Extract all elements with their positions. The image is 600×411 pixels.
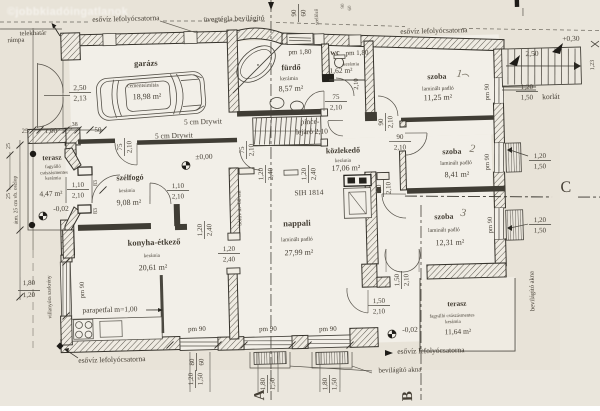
svg-text:8,57 m²: 8,57 m² xyxy=(278,84,303,94)
svg-text:1,20: 1,20 xyxy=(534,152,547,160)
svg-text:pince-: pince- xyxy=(300,117,319,127)
svg-text:-0,02: -0,02 xyxy=(402,325,418,334)
svg-text:1,20: 1,20 xyxy=(534,216,547,224)
svg-text:2,40: 2,40 xyxy=(205,223,213,236)
svg-text:pm 90: pm 90 xyxy=(188,325,206,333)
svg-text:60: 60 xyxy=(348,5,353,11)
svg-text:pm 90: pm 90 xyxy=(259,325,277,333)
svg-text:kerámia: kerámia xyxy=(119,189,136,194)
svg-text:kerámia: kerámia xyxy=(280,76,298,82)
svg-text:18,98 m²: 18,98 m² xyxy=(133,92,162,102)
svg-text:fürdő: fürdő xyxy=(281,63,300,72)
svg-text:szoba: szoba xyxy=(442,147,461,156)
svg-text:90: 90 xyxy=(341,3,346,9)
svg-text:1,50: 1,50 xyxy=(534,226,547,234)
svg-text:12,31 m²: 12,31 m² xyxy=(435,238,464,248)
svg-text:B: B xyxy=(400,391,416,401)
svg-text:pm 1,80: pm 1,80 xyxy=(288,48,312,57)
svg-text:90: 90 xyxy=(375,184,383,192)
svg-text:esővíz lefolyócsatorna: esővíz lefolyócsatorna xyxy=(400,25,468,36)
svg-text:2,10: 2,10 xyxy=(384,181,392,194)
svg-text:1,50: 1,50 xyxy=(196,372,204,385)
svg-text:fagyálló: fagyálló xyxy=(45,165,61,170)
svg-text:szoba: szoba xyxy=(427,72,446,81)
svg-text:5 cm Drywit: 5 cm Drywit xyxy=(184,116,223,126)
svg-text:rámpa: rámpa xyxy=(7,37,24,44)
svg-text:1,20: 1,20 xyxy=(257,167,265,180)
svg-text:1,50: 1,50 xyxy=(373,297,386,305)
svg-text:75: 75 xyxy=(116,143,124,151)
svg-text:1,50: 1,50 xyxy=(521,93,534,101)
svg-text:1,50: 1,50 xyxy=(534,162,547,170)
svg-text:11,25 m²: 11,25 m² xyxy=(424,93,453,103)
svg-text:9,08 m²: 9,08 m² xyxy=(117,198,142,208)
svg-text:17,06 m²: 17,06 m² xyxy=(331,163,360,173)
svg-text:közlekedő: közlekedő xyxy=(326,146,360,156)
svg-text:1,80: 1,80 xyxy=(259,377,267,390)
svg-text:laminált padló: laminált padló xyxy=(281,237,313,244)
svg-text:1,62 m²: 1,62 m² xyxy=(329,66,353,76)
svg-text:90: 90 xyxy=(396,133,404,141)
svg-text:SIH 1814: SIH 1814 xyxy=(294,188,323,198)
svg-text:90: 90 xyxy=(377,118,385,126)
svg-text:kerámia: kerámia xyxy=(144,254,161,259)
svg-text:1,10: 1,10 xyxy=(172,182,185,190)
svg-text:2,10: 2,10 xyxy=(125,140,133,153)
svg-text:terasz: terasz xyxy=(42,153,62,163)
svg-text:2,10: 2,10 xyxy=(394,143,407,151)
svg-text:75: 75 xyxy=(238,146,246,154)
svg-text:cementsimítás: cementsimítás xyxy=(127,83,159,90)
svg-text:2,10: 2,10 xyxy=(386,115,394,128)
svg-text:2,10: 2,10 xyxy=(353,78,360,90)
svg-text:25: 25 xyxy=(22,128,29,135)
svg-text:©jobbkiadóingatlanok: ©jobbkiadóingatlanok xyxy=(7,6,129,18)
svg-text:1,20: 1,20 xyxy=(300,167,308,180)
svg-text:1,20: 1,20 xyxy=(196,223,204,236)
svg-text:1,20: 1,20 xyxy=(23,291,36,299)
svg-text:boltív m=60 cm: boltív m=60 cm xyxy=(237,190,244,226)
svg-text:-0,02: -0,02 xyxy=(53,204,69,213)
svg-text:8,41 m²: 8,41 m² xyxy=(444,170,469,180)
svg-text:laminált padló: laminált padló xyxy=(428,227,460,234)
svg-text:nappali: nappali xyxy=(283,218,311,229)
svg-text:1,20: 1,20 xyxy=(223,245,236,253)
svg-text:konyha-étkező: konyha-étkező xyxy=(127,236,180,247)
svg-text:bevilágító akna: bevilágító akna xyxy=(528,271,536,311)
svg-text:pm 90: pm 90 xyxy=(487,217,494,234)
svg-text:pm 90: pm 90 xyxy=(79,282,86,299)
svg-text:szélfogó: szélfogó xyxy=(116,173,143,183)
svg-text:2,10: 2,10 xyxy=(330,103,343,111)
svg-text:kerámia: kerámia xyxy=(445,320,461,325)
svg-text:1,20: 1,20 xyxy=(187,372,195,385)
svg-text:75: 75 xyxy=(332,93,340,101)
svg-text:esővíz lefolyócsatorna: esővíz lefolyócsatorna xyxy=(397,345,465,356)
svg-text:kerámia: kerámia xyxy=(45,176,61,181)
svg-text:5 cm Drywit: 5 cm Drywit xyxy=(155,130,194,140)
svg-text:pm 1,80: pm 1,80 xyxy=(345,49,369,58)
svg-text:szellőző: szellőző xyxy=(315,8,320,25)
svg-text:2,40: 2,40 xyxy=(309,167,317,180)
svg-text:2,50: 2,50 xyxy=(525,49,539,58)
svg-text:2,10: 2,10 xyxy=(72,191,85,199)
svg-text:A: A xyxy=(252,389,268,400)
svg-text:pm 90: pm 90 xyxy=(484,154,491,171)
svg-text:83: 83 xyxy=(93,208,99,214)
svg-text:83: 83 xyxy=(93,180,99,186)
svg-text:20,61 m²: 20,61 m² xyxy=(139,263,168,273)
svg-text:,38: ,38 xyxy=(70,122,78,128)
svg-text:üvegtégla bevilágító: üvegtégla bevilágító xyxy=(203,13,264,24)
svg-text:pm 90: pm 90 xyxy=(484,84,491,101)
svg-text:1,23: 1,23 xyxy=(590,60,596,71)
svg-text:átm. 25 cm vb. oszlop: átm. 25 cm vb. oszlop xyxy=(12,175,19,224)
svg-text:garázs: garázs xyxy=(134,58,159,69)
svg-text:1,00: 1,00 xyxy=(45,127,58,135)
svg-text:2,50: 2,50 xyxy=(73,83,87,92)
svg-text:90: 90 xyxy=(290,9,298,17)
svg-text:80: 80 xyxy=(188,358,196,366)
svg-text:25: 25 xyxy=(6,193,12,199)
svg-text:11,64 m²: 11,64 m² xyxy=(445,327,473,337)
svg-text:villanyóra szekrény: villanyóra szekrény xyxy=(46,275,53,319)
svg-text:2,40: 2,40 xyxy=(223,255,236,263)
svg-text:laminált padló: laminált padló xyxy=(422,86,454,93)
svg-text:esővíz lefolyócsatorna: esővíz lefolyócsatorna xyxy=(78,354,146,365)
svg-text:pm 90: pm 90 xyxy=(319,325,337,333)
svg-text:2,13: 2,13 xyxy=(73,93,87,102)
svg-text:60: 60 xyxy=(299,9,307,17)
svg-text:2,10: 2,10 xyxy=(373,307,386,315)
svg-text:szoba: szoba xyxy=(434,212,453,221)
svg-text:1,10: 1,10 xyxy=(72,181,85,189)
svg-text:bevilágító akna: bevilágító akna xyxy=(378,365,422,374)
svg-text:laminált padló: laminált padló xyxy=(440,160,472,167)
svg-text:+0,30: +0,30 xyxy=(562,34,580,43)
svg-text:wc: wc xyxy=(330,48,340,57)
svg-text:1,50: 1,50 xyxy=(393,273,401,286)
svg-text:4,47 m²: 4,47 m² xyxy=(39,189,63,199)
svg-text:1,50: 1,50 xyxy=(268,377,276,390)
svg-text:60: 60 xyxy=(197,358,205,366)
svg-text:korlát: korlát xyxy=(542,92,561,101)
svg-text:2,10: 2,10 xyxy=(172,192,185,200)
svg-text:1,80: 1,80 xyxy=(23,279,36,287)
svg-text:C: C xyxy=(560,179,571,196)
svg-text:25: 25 xyxy=(6,143,12,149)
svg-text:lejáró 2,10: lejáró 2,10 xyxy=(296,127,329,137)
svg-text:27,99 m²: 27,99 m² xyxy=(284,248,313,258)
svg-text:2,40: 2,40 xyxy=(266,167,274,180)
svg-text:1,80: 1,80 xyxy=(321,377,329,390)
svg-text:parapetfal m=1,00: parapetfal m=1,00 xyxy=(82,304,138,314)
svg-text:±0,00: ±0,00 xyxy=(195,152,213,161)
svg-text:1,20: 1,20 xyxy=(521,83,534,91)
svg-text:2,10: 2,10 xyxy=(402,273,410,286)
svg-text:1,50: 1,50 xyxy=(330,377,338,390)
svg-text:terasz: terasz xyxy=(447,299,467,309)
svg-text:2,10: 2,10 xyxy=(247,143,255,156)
